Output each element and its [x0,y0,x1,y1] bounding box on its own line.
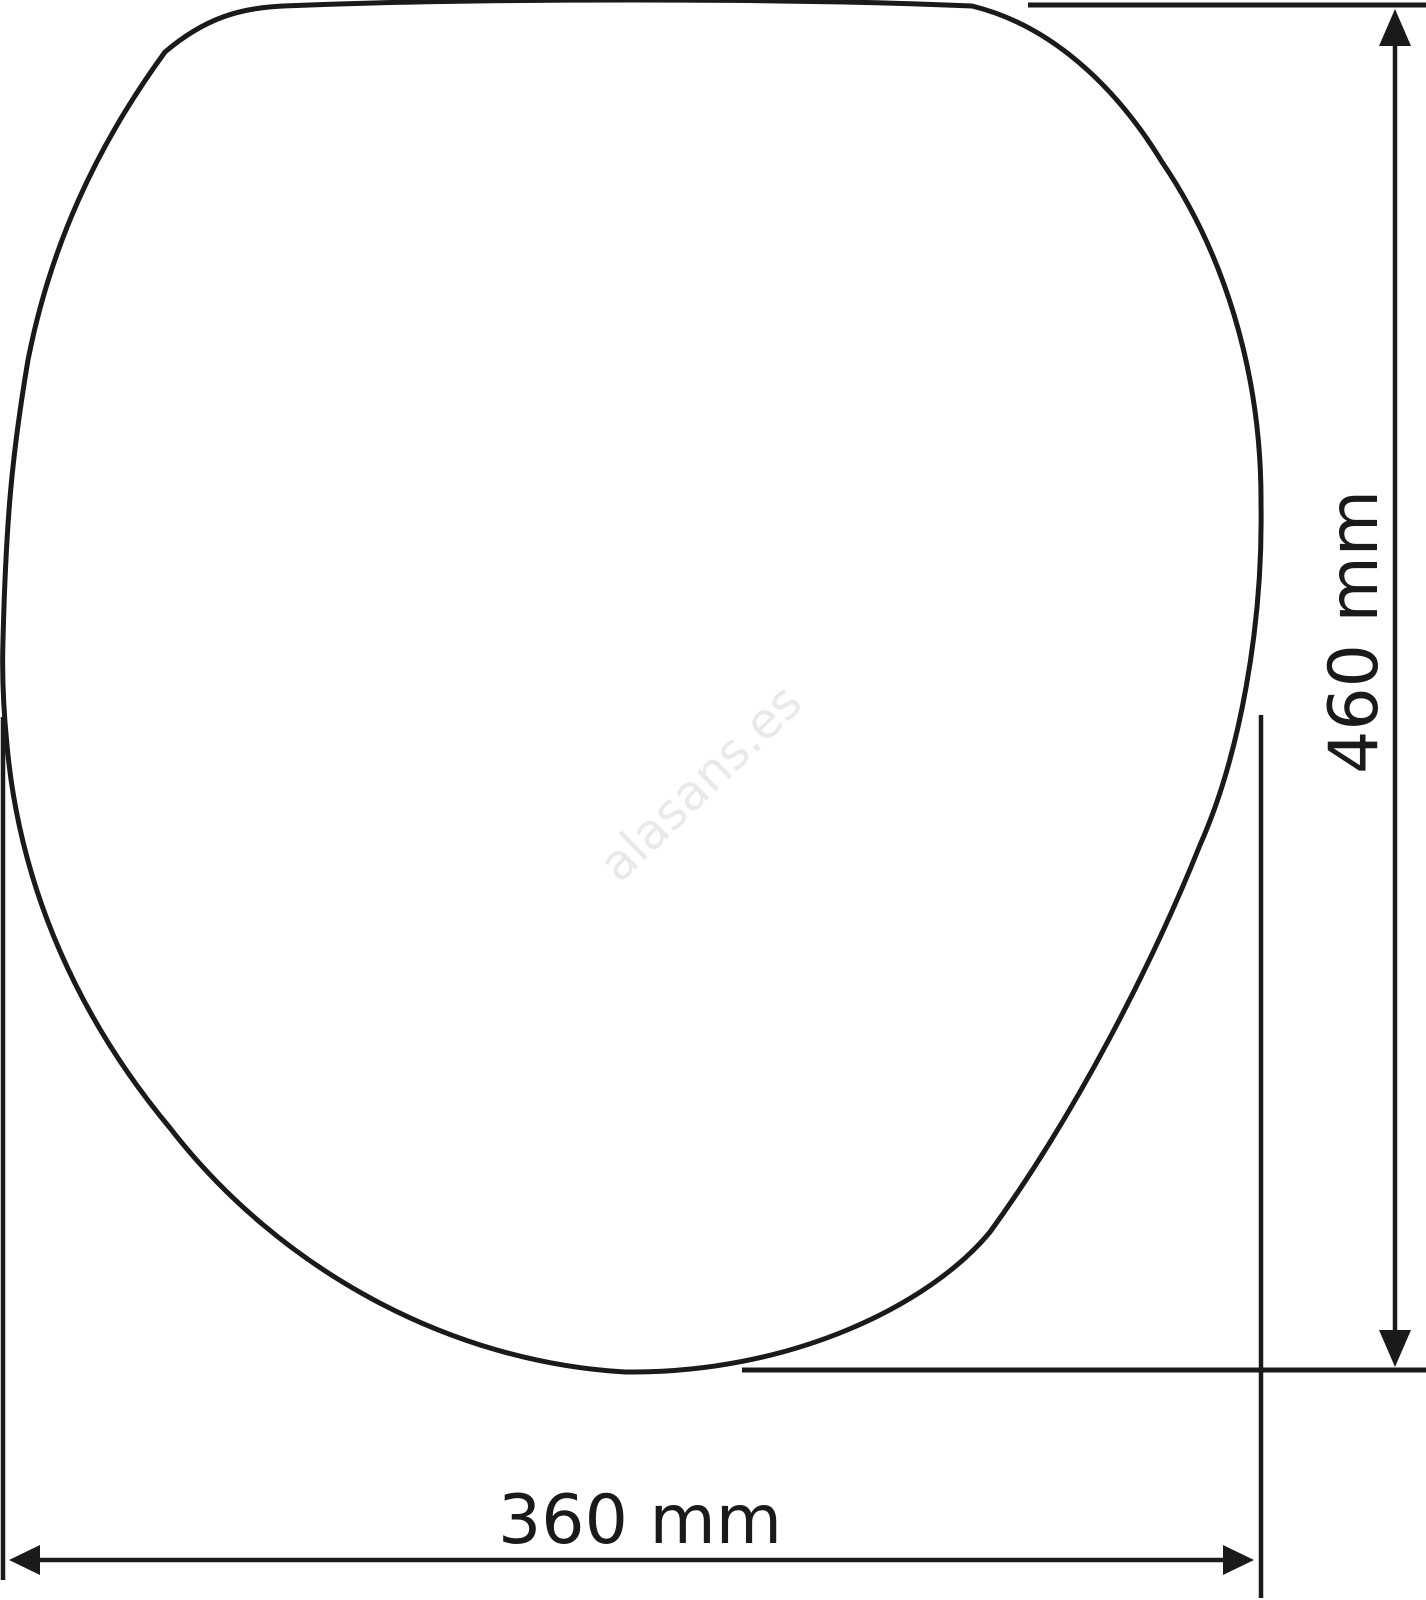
arrow-left-icon [9,1545,40,1575]
height-dimension-label: 460 mm [1315,490,1394,774]
width-dimension-label: 360 mm [498,1481,782,1560]
arrow-up-icon [1379,9,1411,46]
arrow-right-icon [1223,1545,1254,1575]
watermark-text: alasans.es [588,673,813,893]
technical-drawing-canvas: alasans.es 460 mm 360 mm [0,0,1426,1600]
seat-outline [3,0,1261,1372]
toilet-seat-dimension-diagram: alasans.es 460 mm 360 mm [0,0,1426,1600]
arrow-down-icon [1379,1330,1411,1367]
